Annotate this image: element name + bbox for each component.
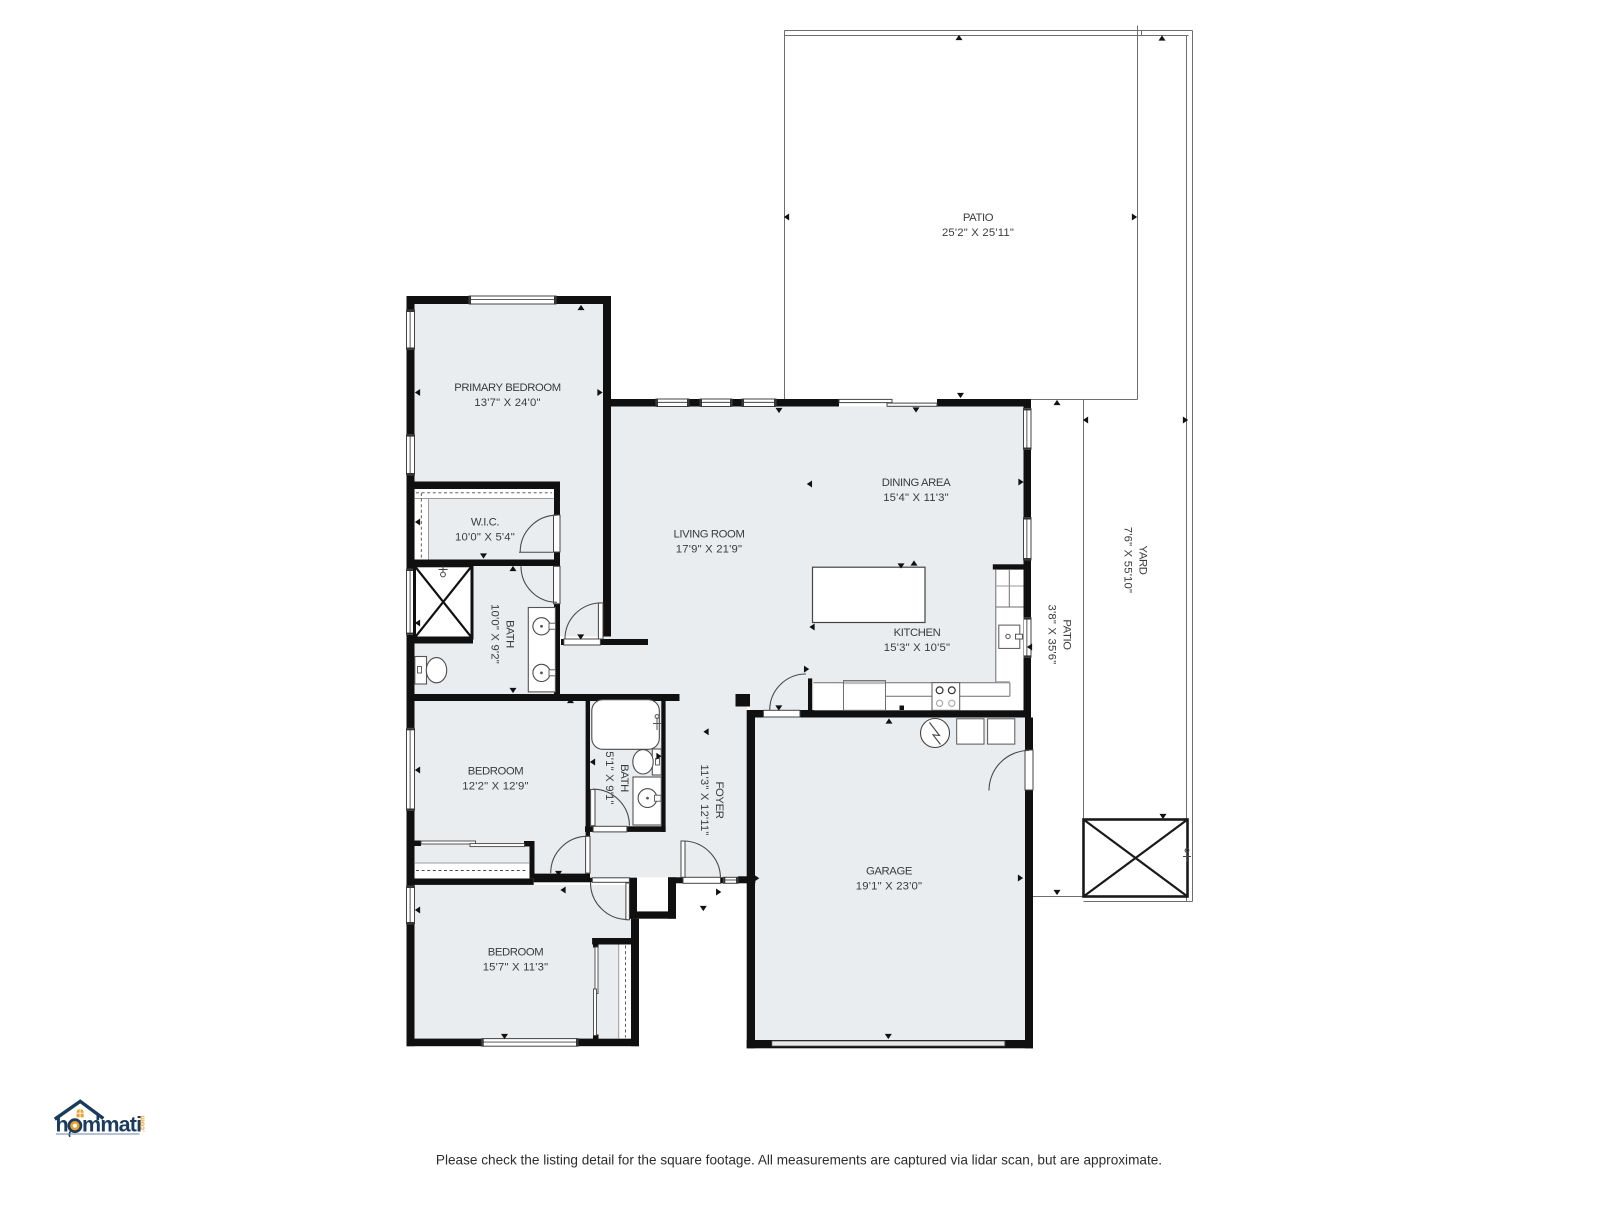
svg-text:15'4" X 11'3": 15'4" X 11'3" xyxy=(883,492,949,504)
svg-text:W.I.C.: W.I.C. xyxy=(471,517,500,529)
svg-text:10'0" X 9'2": 10'0" X 9'2" xyxy=(489,604,501,664)
svg-text:FOYER: FOYER xyxy=(713,782,725,819)
svg-text:PATIO: PATIO xyxy=(1061,619,1073,650)
svg-text:BATH: BATH xyxy=(504,620,516,648)
svg-text:mmati: mmati xyxy=(82,1113,141,1137)
svg-text:PRIMARY BEDROOM: PRIMARY BEDROOM xyxy=(454,382,561,394)
svg-text:BEDROOM: BEDROOM xyxy=(468,766,524,778)
svg-text:19'1" X 23'0": 19'1" X 23'0" xyxy=(856,881,922,893)
svg-text:PATIO: PATIO xyxy=(963,212,994,224)
svg-text:15'7" X 11'3": 15'7" X 11'3" xyxy=(483,962,549,974)
svg-text:25'2" X 25'11": 25'2" X 25'11" xyxy=(942,227,1014,239)
svg-text:YARD: YARD xyxy=(1137,546,1149,575)
svg-text:15'3" X 10'5": 15'3" X 10'5" xyxy=(884,642,950,654)
svg-text:DINING AREA: DINING AREA xyxy=(882,477,951,489)
svg-text:.com: .com xyxy=(140,1116,147,1132)
svg-text:5'1" X 9'1": 5'1" X 9'1" xyxy=(603,751,615,804)
svg-text:10'0" X 5'4": 10'0" X 5'4" xyxy=(455,532,515,544)
svg-text:12'2" X 12'9": 12'2" X 12'9" xyxy=(462,781,528,793)
svg-text:BATH: BATH xyxy=(618,764,630,792)
svg-text:Please check the listing detai: Please check the listing detail for the … xyxy=(436,1153,1162,1168)
svg-text:3'8" X 35'6": 3'8" X 35'6" xyxy=(1046,605,1058,665)
svg-text:17'9" X 21'9": 17'9" X 21'9" xyxy=(676,544,742,556)
svg-text:13'7" X 24'0": 13'7" X 24'0" xyxy=(474,397,540,409)
svg-text:7'6" X 55'10": 7'6" X 55'10" xyxy=(1122,527,1134,593)
svg-text:LIVING ROOM: LIVING ROOM xyxy=(674,529,745,541)
svg-text:h: h xyxy=(56,1113,68,1137)
svg-text:GARAGE: GARAGE xyxy=(866,866,913,878)
svg-text:BEDROOM: BEDROOM xyxy=(488,947,544,959)
svg-text:KITCHEN: KITCHEN xyxy=(894,627,941,639)
svg-text:11'3" X 12'11": 11'3" X 12'11" xyxy=(698,764,710,835)
